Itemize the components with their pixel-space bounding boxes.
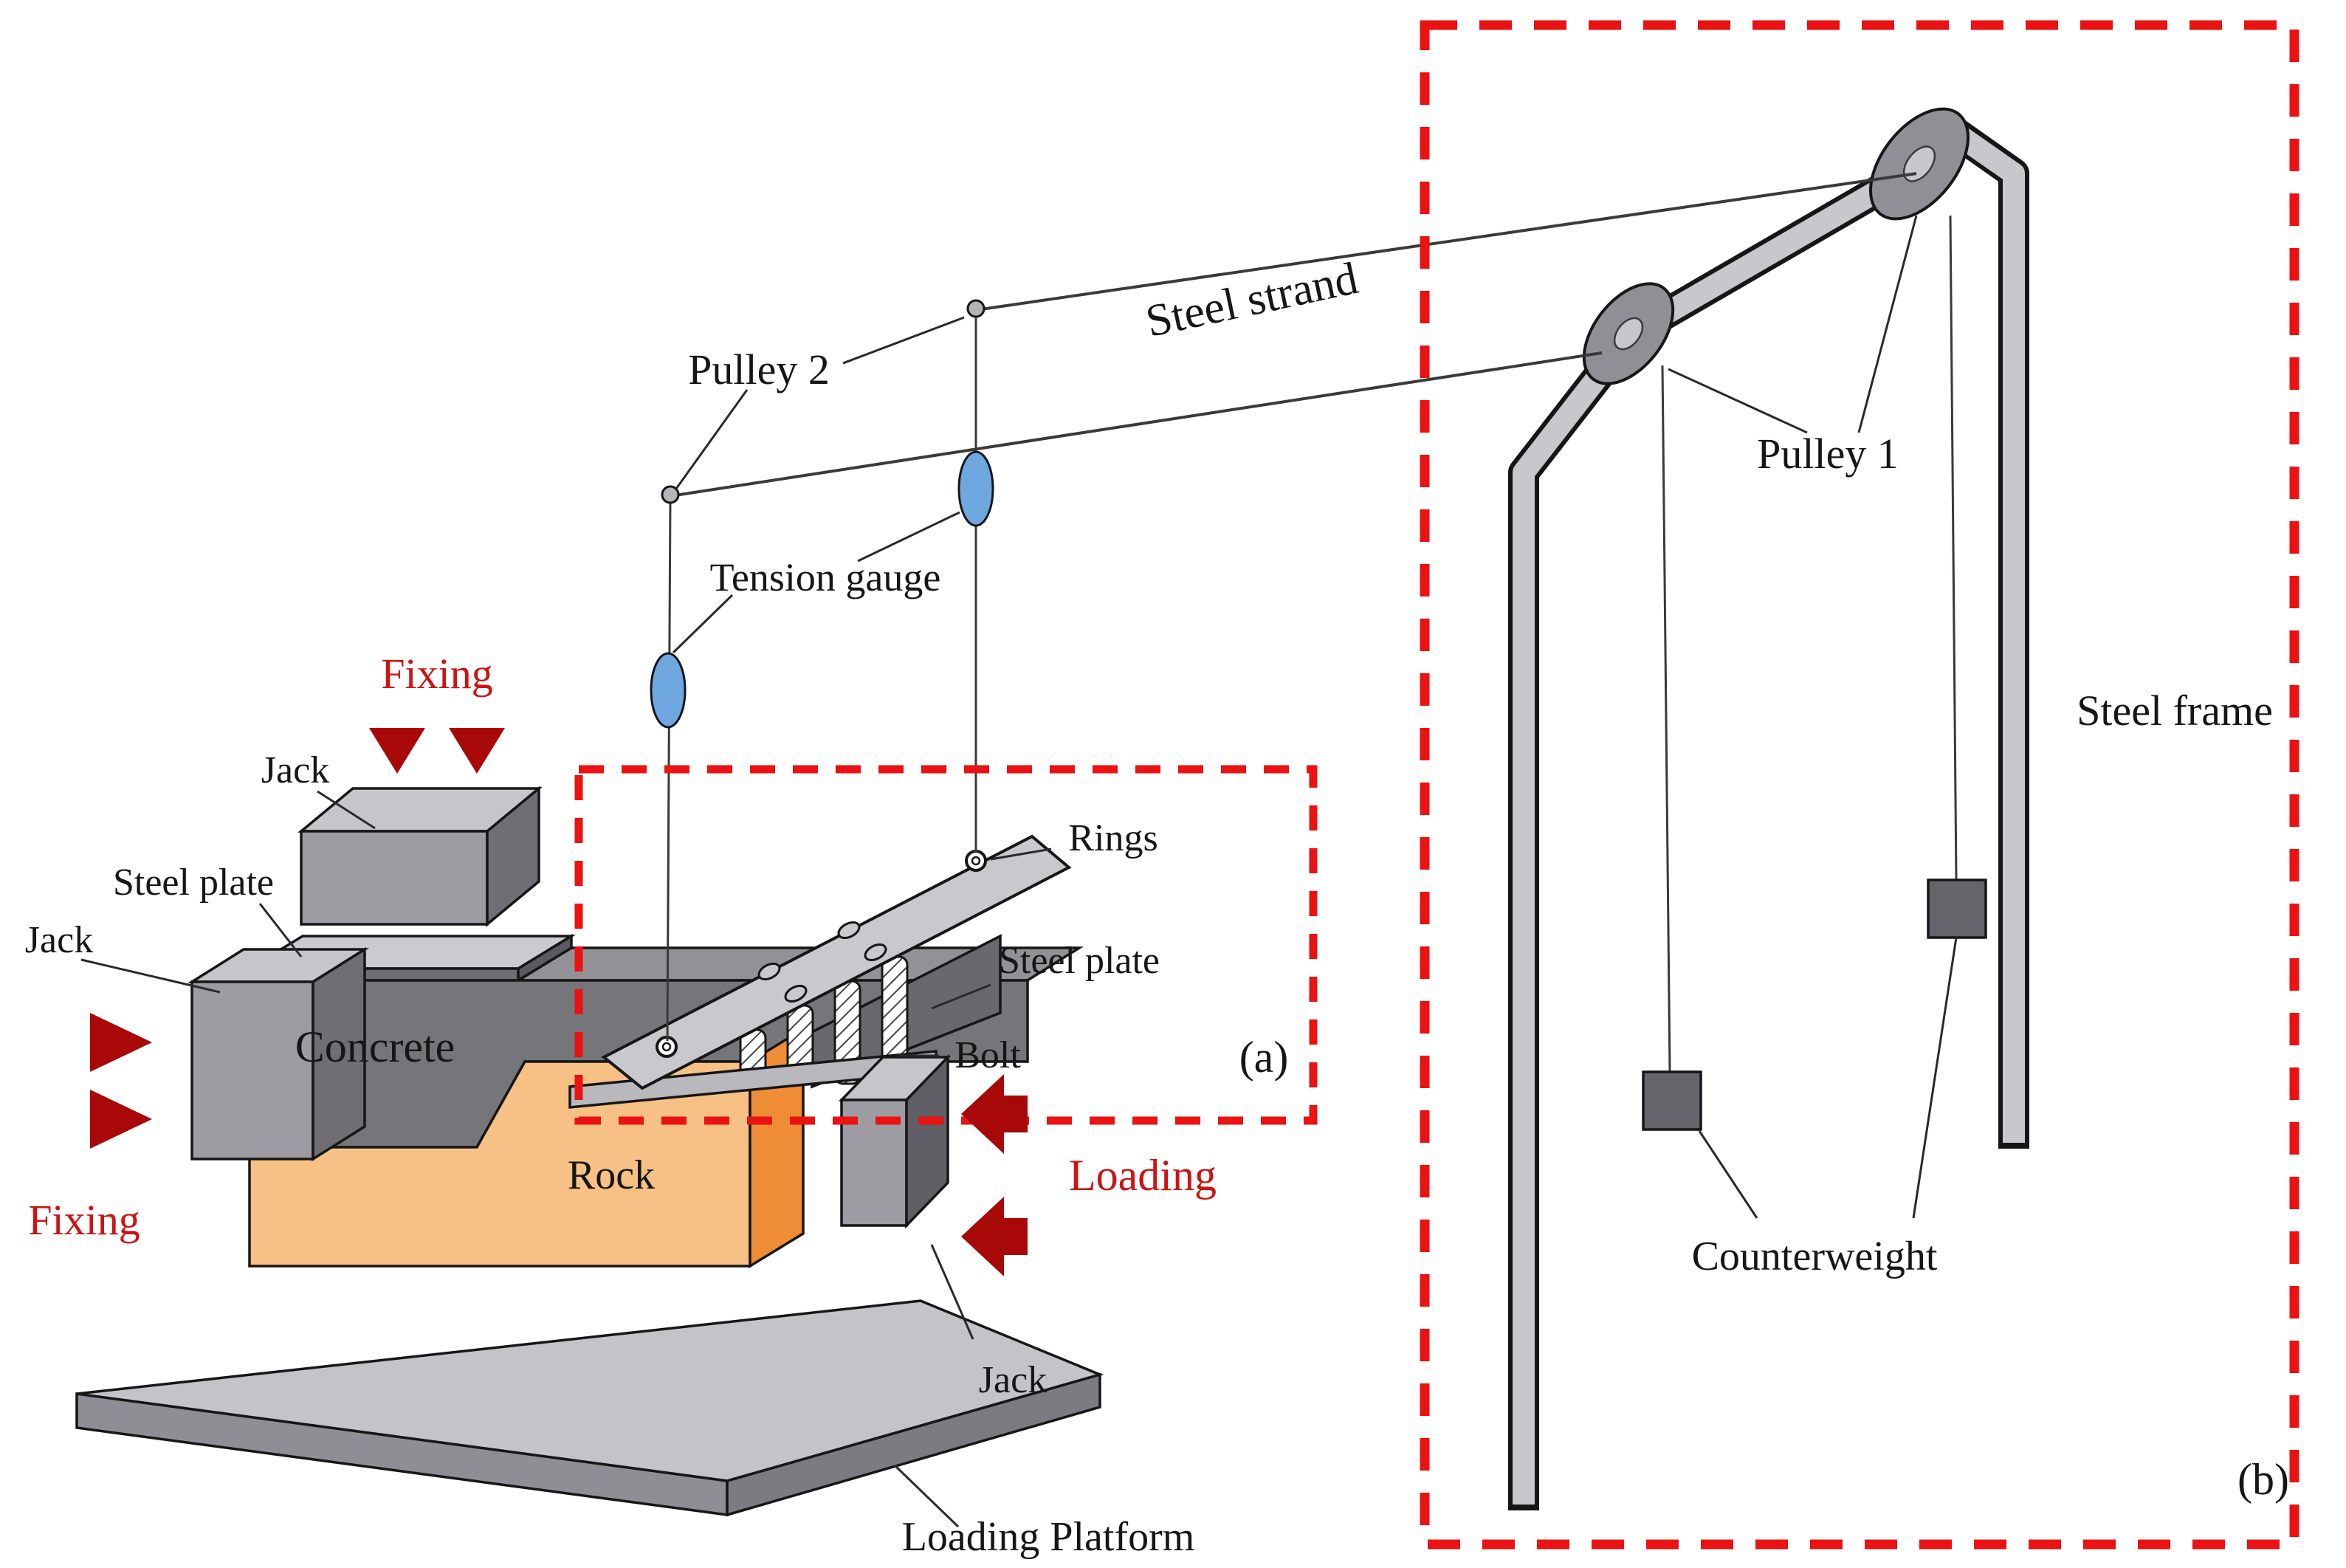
jack-right-label: Jack — [979, 1359, 1047, 1401]
pulley2-leader-right — [843, 317, 964, 363]
steel-strand-label: Steel strand — [1141, 253, 1362, 347]
counterweight-right — [1928, 880, 1986, 938]
counterweight-leader-right — [1913, 938, 1956, 1218]
loading-label: Loading — [1069, 1151, 1217, 1200]
panel-a-label: (a) — [1239, 1033, 1289, 1082]
bolt-label: Bolt — [954, 1034, 1021, 1076]
fixing-arrow-down-2 — [449, 728, 505, 774]
jack-right-box — [842, 1057, 948, 1225]
string-left — [1662, 365, 1670, 1072]
pulley-2-right — [968, 300, 984, 317]
counterweight-label: Counterweight — [1692, 1234, 1938, 1279]
counterweight-left — [1643, 1072, 1701, 1129]
concrete-label: Concrete — [295, 1022, 455, 1071]
jack-top-label: Jack — [261, 749, 329, 791]
panel-b-label: (b) — [2237, 1455, 2289, 1504]
rings-label: Rings — [1068, 817, 1157, 859]
ring-upper — [966, 851, 985, 870]
jack-top-box — [301, 788, 539, 924]
pulley1-leader-left — [1668, 369, 1807, 433]
counterweight-leader-left — [1699, 1131, 1757, 1218]
pulley-1-upper — [1851, 91, 1988, 236]
fixing-left-label: Fixing — [28, 1196, 140, 1244]
jack-left-label: Jack — [25, 919, 93, 961]
loading-arrow-left-1 — [961, 1074, 1028, 1154]
tension-gauge-leader-left — [673, 595, 732, 653]
fixing-arrow-right-1 — [90, 1013, 152, 1072]
steel-plate-inner-label: Steel plate — [999, 940, 1160, 982]
tension-gauge-left — [651, 653, 685, 727]
steel-plate-top-label: Steel plate — [113, 862, 274, 904]
fixing-top-label: Fixing — [381, 650, 493, 698]
fixing-arrow-down-1 — [369, 728, 425, 774]
pulley2-leader-left — [676, 390, 747, 489]
pulley1-leader-right — [1859, 216, 1916, 433]
string-right — [1950, 216, 1956, 880]
pulley1-label: Pulley 1 — [1757, 430, 1899, 478]
tension-gauge-label: Tension gauge — [710, 555, 941, 599]
loading-platform-label: Loading Platform — [902, 1514, 1195, 1560]
panel-b-box — [1425, 25, 2294, 1544]
rock-label: Rock — [568, 1152, 655, 1198]
loading-arrow-left-2 — [961, 1197, 1028, 1276]
frame-left-post — [1524, 167, 1919, 1510]
pulley-2-left — [662, 486, 678, 503]
fixing-arrow-right-2 — [90, 1090, 152, 1149]
experimental-setup-diagram: Pulley 2 Steel strand Tension gauge Pull… — [0, 0, 2346, 1568]
tension-gauge-right — [959, 452, 993, 526]
steel-frame-label: Steel frame — [2077, 687, 2273, 735]
loading-platform — [77, 1301, 1100, 1515]
pulley2-label: Pulley 2 — [688, 345, 830, 393]
tension-gauge-leader-right — [858, 512, 960, 561]
